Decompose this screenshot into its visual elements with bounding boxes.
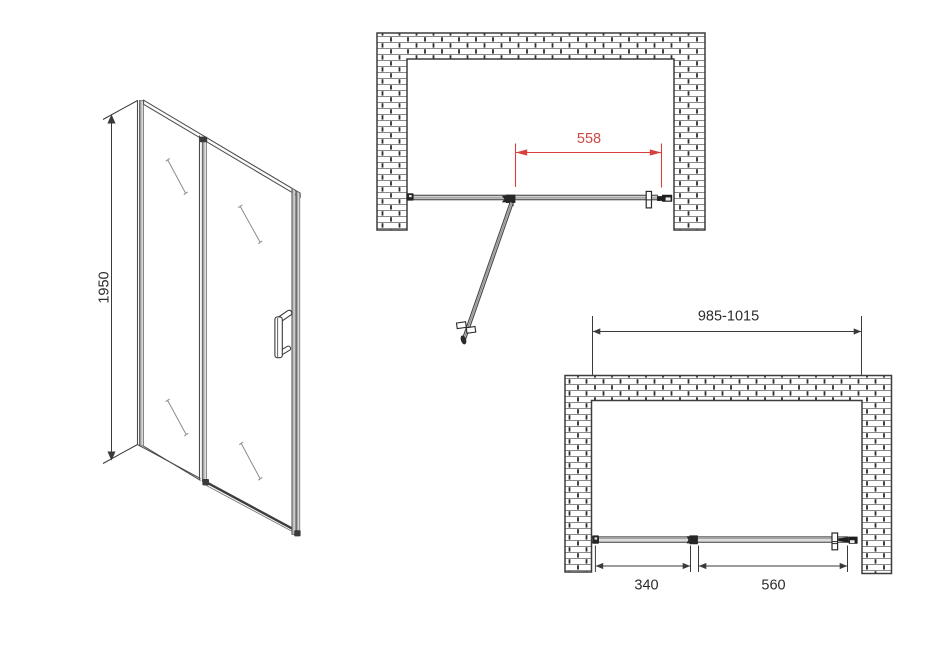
svg-text:985-1015: 985-1015 — [698, 309, 759, 325]
svg-text:340: 340 — [634, 578, 658, 594]
svg-text:560: 560 — [761, 578, 785, 594]
svg-text:1950: 1950 — [97, 271, 113, 303]
svg-text:558: 558 — [577, 131, 601, 147]
